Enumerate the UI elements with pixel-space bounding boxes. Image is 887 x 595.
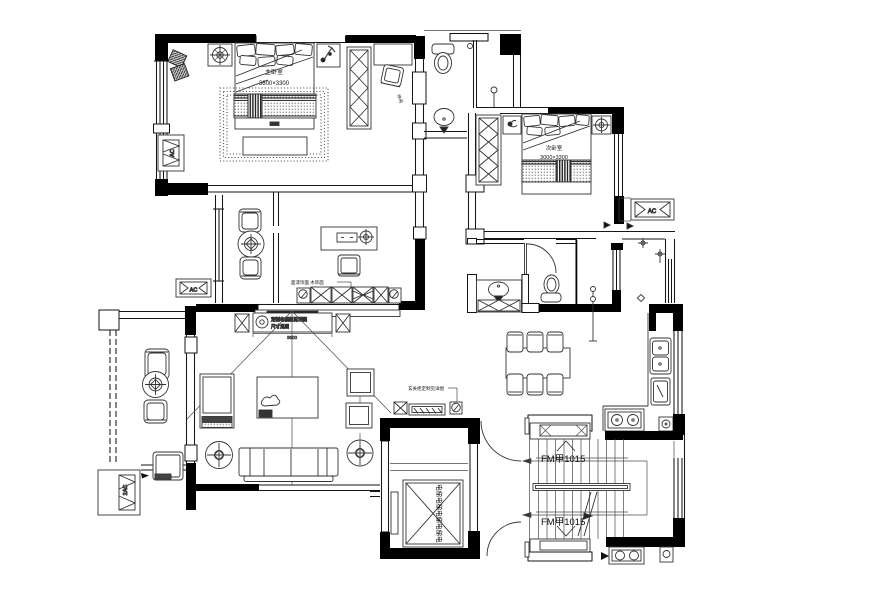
svg-text:面漆饰面 木饰面: 面漆饰面 木饰面 bbox=[291, 279, 324, 286]
svg-text:AC: AC bbox=[648, 209, 657, 215]
svg-text:定制电视柜见详图: 定制电视柜见详图 bbox=[271, 316, 307, 323]
svg-text:尺寸见图: 尺寸见图 bbox=[271, 323, 289, 330]
svg-text:AC: AC bbox=[170, 149, 176, 157]
svg-text:主卧室: 主卧室 bbox=[265, 68, 283, 76]
svg-text:电梯电梯电梯电梯电: 电梯电梯电梯电梯电 bbox=[435, 484, 444, 543]
svg-text:次卧室: 次卧室 bbox=[546, 144, 563, 152]
svg-text:AC: AC bbox=[190, 288, 198, 294]
svg-text:2AC: 2AC bbox=[123, 485, 129, 496]
svg-text:FM甲1015: FM甲1015 bbox=[541, 517, 585, 528]
svg-text:玄关柜定制见详图: 玄关柜定制见详图 bbox=[408, 385, 444, 392]
svg-text:3800×3300: 3800×3300 bbox=[259, 81, 290, 87]
svg-text:FM甲1015: FM甲1015 bbox=[541, 454, 585, 465]
